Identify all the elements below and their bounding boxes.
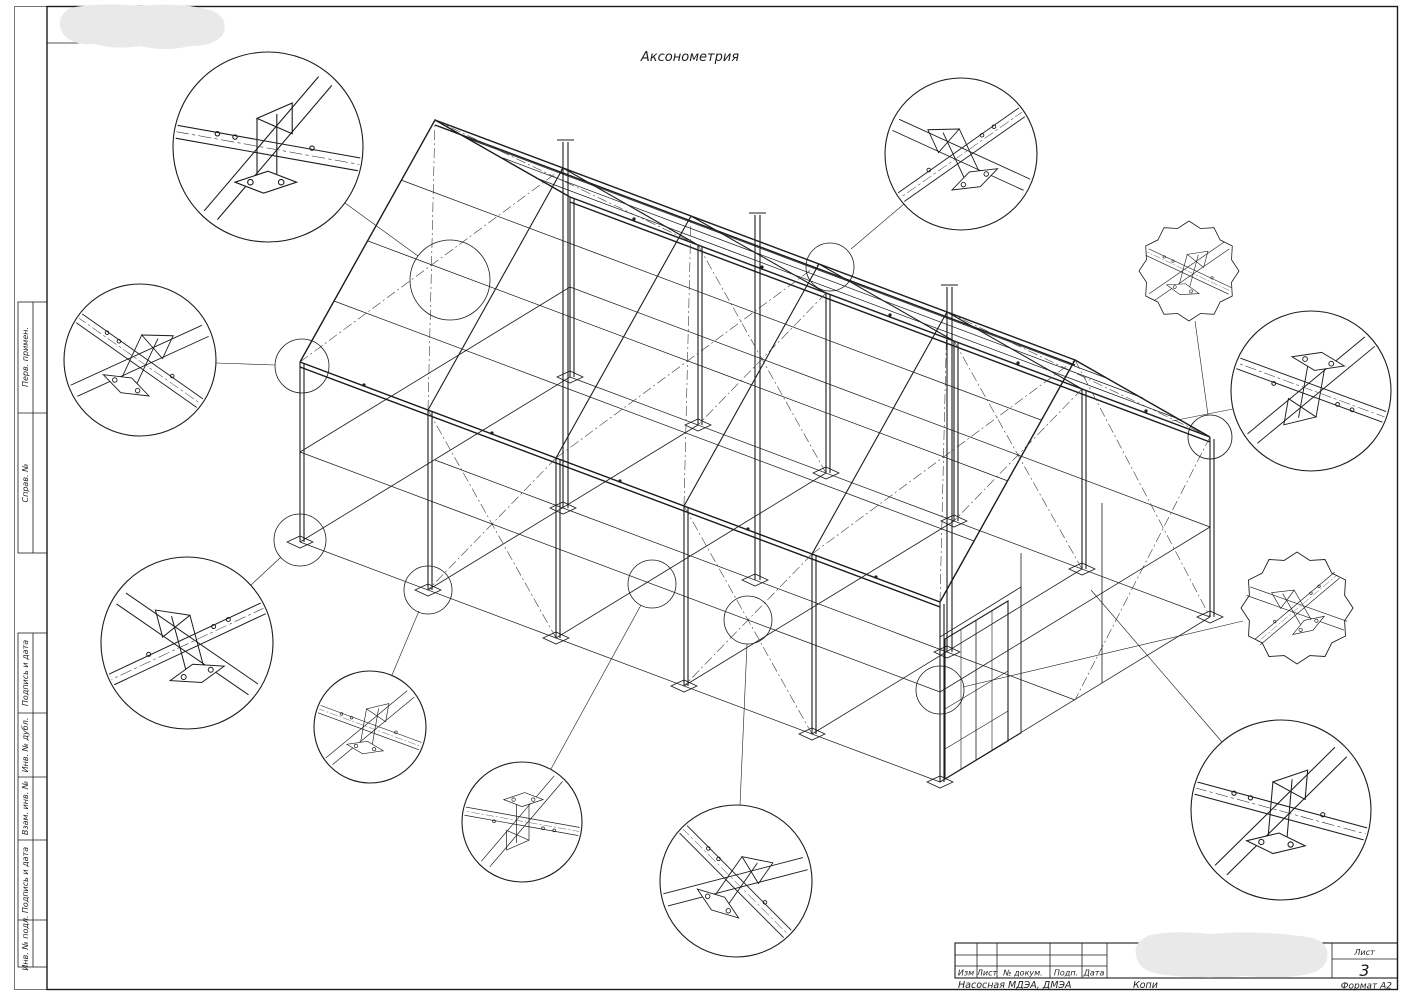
drawing-title: Аксонометрия [640, 50, 739, 65]
document-name: Насосная МДЭА, ДМЭА [958, 980, 1072, 991]
format-label: Формат А2 [1341, 982, 1393, 992]
detail-circle [868, 70, 1054, 240]
detail-circle [308, 671, 432, 783]
detail-circle [89, 557, 285, 729]
sheet-label: Лист [1353, 948, 1375, 957]
detail-circle [46, 276, 232, 446]
detail-circle-jagged [1130, 221, 1248, 322]
margin-label-vzam-inv: Взам. инв. № [21, 781, 30, 835]
steel-frame-structure [287, 120, 1223, 788]
copied-label: Копи [1133, 980, 1158, 991]
gost-frame [15, 7, 1398, 990]
detail-circle [173, 52, 363, 242]
detail-circles [46, 52, 1400, 973]
margin-label-inv-dubl: Инв. № дубл. [21, 718, 30, 773]
redaction-blob-top-left [60, 4, 225, 49]
detail-circle [1222, 311, 1401, 471]
detail-circle-jagged [1229, 545, 1366, 673]
drawing-sheet: Аксонометрия Перв. примен. Справ. № Подп… [0, 0, 1403, 992]
detail-circle [1187, 720, 1375, 900]
redaction-blob-title-block [1136, 932, 1328, 977]
detail-circle [462, 762, 582, 882]
callout-rings [274, 240, 1232, 714]
detail-circle [640, 790, 831, 973]
margin-label-sprav-no: Справ. № [21, 464, 30, 503]
titleblock-header-izm: Изм [958, 969, 974, 978]
margin-label-perv-primen: Перв. примен. [21, 327, 30, 387]
axonometric-drawing: Аксонометрия Перв. примен. Справ. № Подп… [0, 0, 1403, 992]
margin-label-inv-podl: Инв. № подл. [21, 915, 30, 970]
titleblock-header-data: Дата [1083, 969, 1105, 978]
sheet-number: 3 [1359, 961, 1369, 980]
titleblock-header-dokum: № докум. [1002, 969, 1042, 978]
margin-label-podpis-data-1: Подпись и дата [21, 640, 30, 706]
titleblock-header-podp: Подп. [1054, 969, 1078, 978]
titleblock-header-list: Лист [976, 969, 998, 978]
leader-lines [216, 203, 1243, 805]
margin-label-podpis-data-2: Подпись и дата [21, 847, 30, 913]
